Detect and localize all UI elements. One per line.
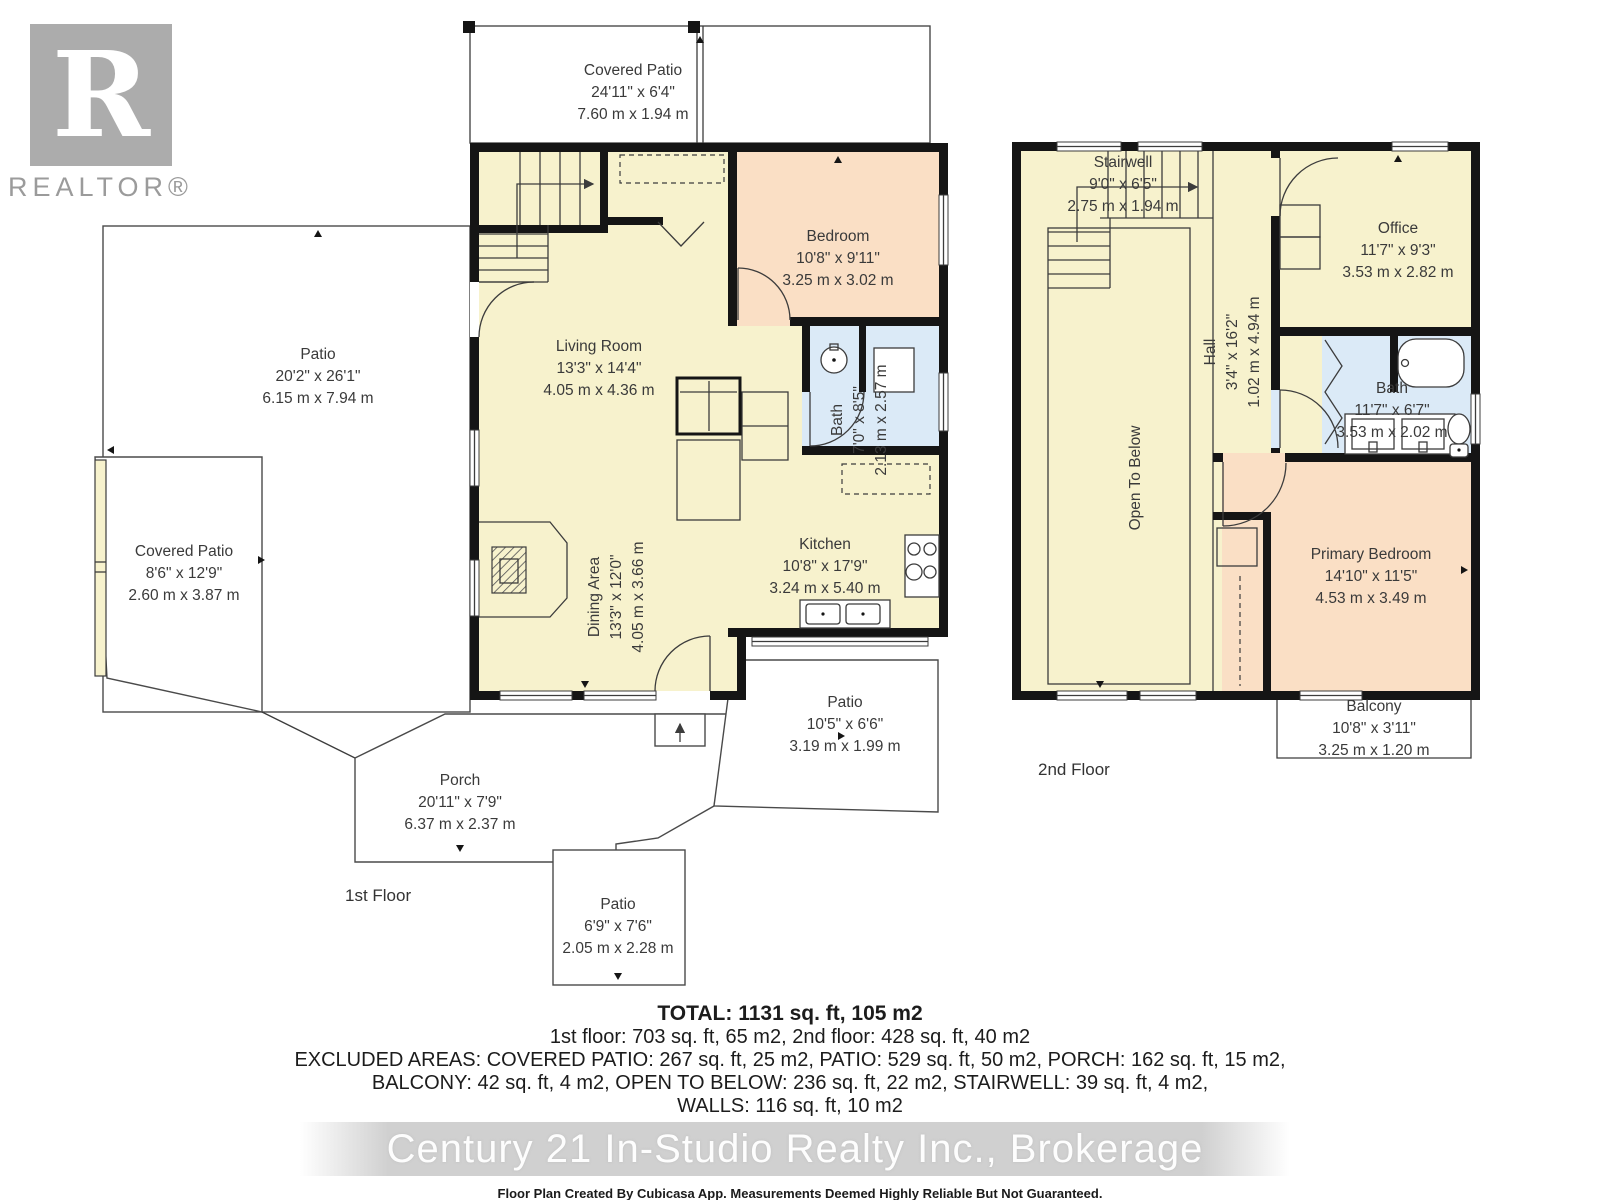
label-bedroom1: Bedroom 10'8" x 9'11" 3.25 m x 3.02 m [782,226,893,292]
label-porch: Porch 20'11" x 7'9" 6.37 m x 2.37 m [404,770,515,836]
summary-total: TOTAL: 1131 sq. ft, 105 m2 [160,1002,1420,1026]
label-primary-bedroom: Primary Bedroom 14'10" x 11'5" 4.53 m x … [1311,544,1432,610]
floor1-label: 1st Floor [345,886,411,906]
label-open-to-below: Open To Below [1125,426,1147,531]
realtor-logo: R [30,24,172,166]
realtor-logo-label: REALTOR® [8,172,198,203]
label-patio-bottom: Patio 6'9" x 7'6" 2.05 m x 2.28 m [562,894,673,960]
label-covered-patio-top: Covered Patio 24'11" x 6'4" 7.60 m x 1.9… [577,60,688,126]
floor1-plan [95,21,948,985]
summary-floors: 1st floor: 703 sq. ft, 65 m2, 2nd floor:… [160,1026,1420,1049]
summary-walls: WALLS: 116 sq. ft, 10 m2 [160,1095,1420,1118]
label-balcony: Balcony 10'8" x 3'11" 3.25 m x 1.20 m [1318,696,1429,762]
summary-excluded-2: BALCONY: 42 sq. ft, 4 m2, OPEN TO BELOW:… [160,1072,1420,1095]
label-covered-patio-left: Covered Patio 8'6" x 12'9" 2.60 m x 3.87… [128,541,239,607]
label-hall: Hall 3'4" x 16'2" 1.02 m x 4.94 m [1200,296,1266,407]
floor2-label: 2nd Floor [1038,760,1110,780]
label-living-room: Living Room 13'3" x 14'4" 4.05 m x 4.36 … [543,336,654,402]
label-office: Office 11'7" x 9'3" 3.53 m x 2.82 m [1342,218,1453,284]
label-patio-left: Patio 20'2" x 26'1" 6.15 m x 7.94 m [262,344,373,410]
label-bath1: Bath 7'0" x 8'5" 2.13 m x 2.57 m [827,364,893,475]
label-stairwell: Stairwell 9'0" x 6'5" 2.75 m x 1.94 m [1067,152,1178,218]
label-bath2: Bath 11'7" x 6'7" 3.53 m x 2.02 m [1336,378,1447,444]
label-kitchen: Kitchen 10'8" x 17'9" 3.24 m x 5.40 m [769,534,880,600]
brokerage-watermark: Century 21 In-Studio Realty Inc., Broker… [300,1122,1290,1176]
summary-excluded-1: EXCLUDED AREAS: COVERED PATIO: 267 sq. f… [160,1049,1420,1072]
floorplan-page: R REALTOR® Covered Patio 24'11" x 6'4" 7… [0,0,1600,1200]
label-patio-right: Patio 10'5" x 6'6" 3.19 m x 1.99 m [789,692,900,758]
disclaimer-text: Floor Plan Created By Cubicasa App. Meas… [0,1186,1600,1200]
stove-icon [905,535,939,597]
covered-patio-top-area [470,26,930,143]
toilet [1448,414,1470,444]
realtor-logo-r: R [52,36,150,154]
kitchen-sink [800,600,890,628]
area-summary: TOTAL: 1131 sq. ft, 105 m2 1st floor: 70… [160,1002,1420,1118]
label-dining-area: Dining Area 13'3" x 12'0" 4.05 m x 3.66 … [584,541,650,652]
